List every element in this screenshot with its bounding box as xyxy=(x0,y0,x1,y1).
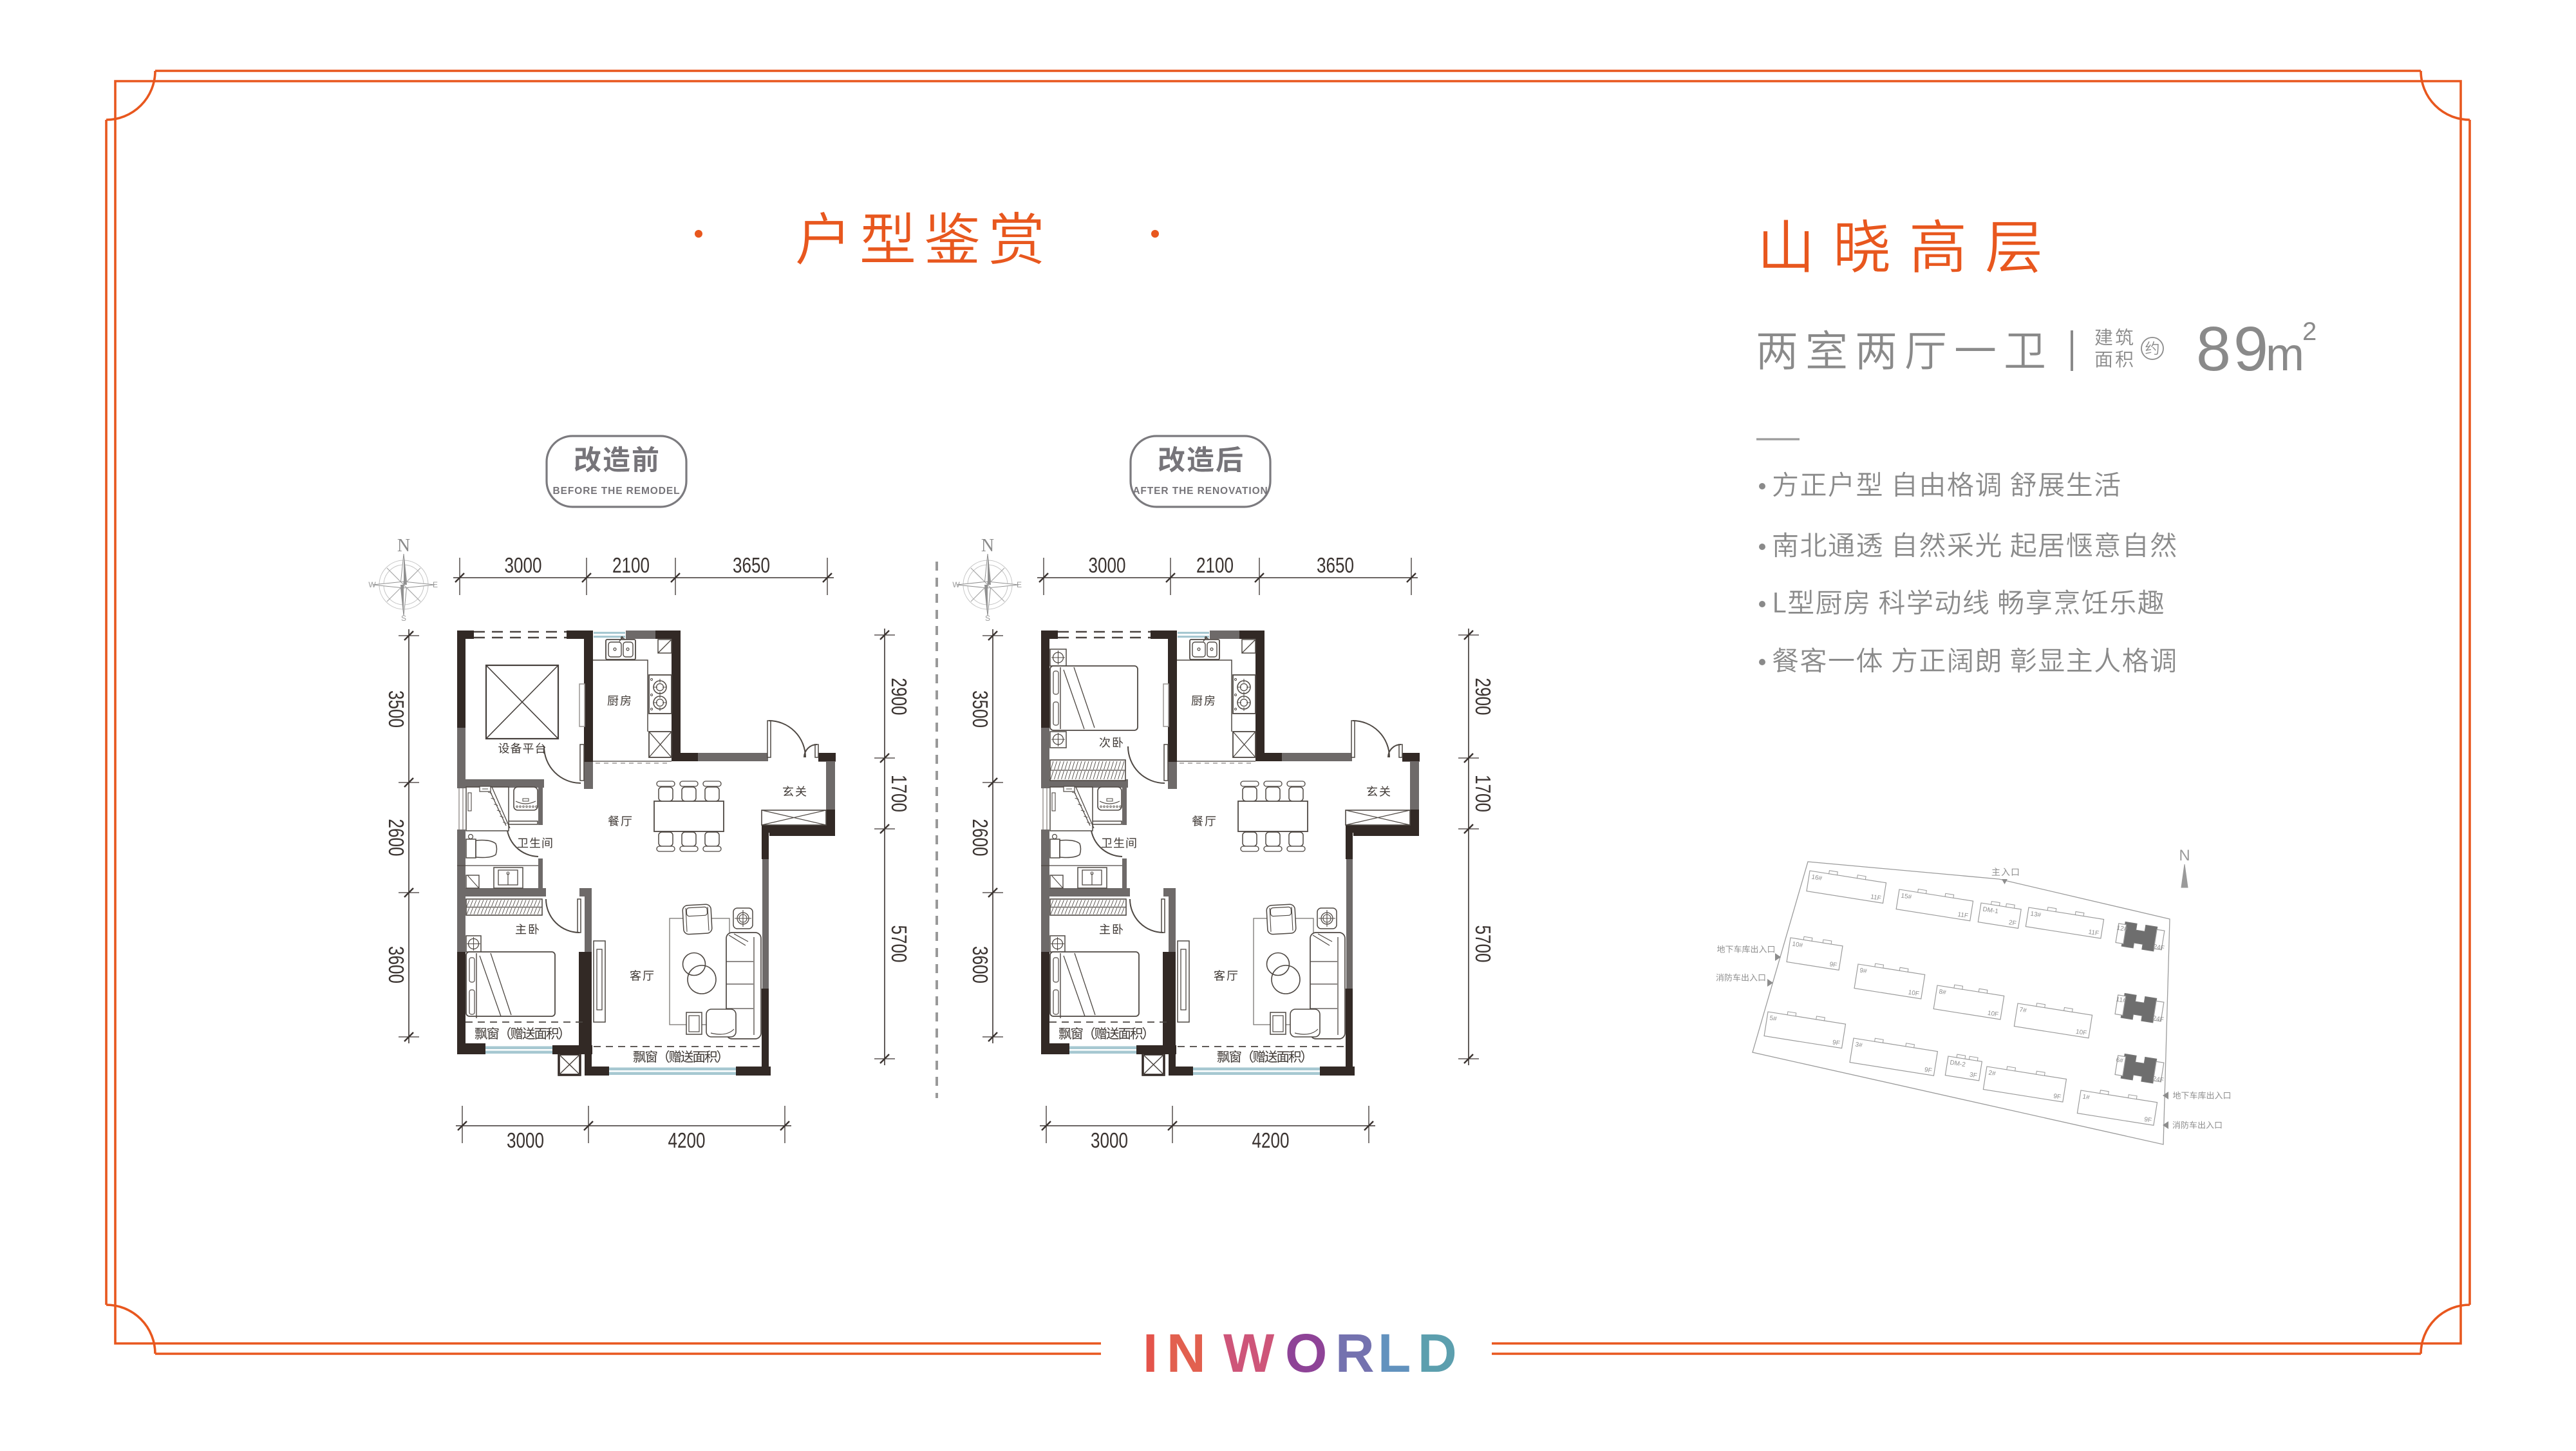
svg-text:1700: 1700 xyxy=(1471,775,1495,812)
svg-text:E: E xyxy=(1017,580,1022,589)
svg-text:2#: 2# xyxy=(1988,1070,1997,1078)
svg-text:2600: 2600 xyxy=(384,819,408,857)
svg-text:9F: 9F xyxy=(1924,1067,1932,1075)
svg-text:W: W xyxy=(1223,1323,1275,1383)
svg-text:1700: 1700 xyxy=(887,775,911,812)
svg-text:2F: 2F xyxy=(2008,919,2017,927)
svg-text:8#: 8# xyxy=(1939,989,1947,997)
svg-text:2900: 2900 xyxy=(1471,678,1495,716)
svg-text:I: I xyxy=(1143,1323,1158,1383)
svg-text:R: R xyxy=(1335,1323,1375,1383)
svg-text:N: N xyxy=(397,536,410,556)
svg-text:3500: 3500 xyxy=(968,690,992,728)
svg-text:3#: 3# xyxy=(1855,1041,1863,1050)
svg-text:m: m xyxy=(2266,329,2304,381)
svg-text:24F: 24F xyxy=(2152,1015,2165,1024)
svg-text:E: E xyxy=(433,580,438,589)
svg-text:3600: 3600 xyxy=(968,946,992,983)
svg-text:N: N xyxy=(1167,1323,1206,1383)
svg-text:3500: 3500 xyxy=(384,690,408,728)
svg-text:4200: 4200 xyxy=(1252,1128,1290,1152)
svg-text:AFTER THE RENOVATION: AFTER THE RENOVATION xyxy=(1133,486,1268,497)
svg-text:9#: 9# xyxy=(1859,967,1868,976)
svg-text:N: N xyxy=(2179,847,2190,864)
svg-text:2100: 2100 xyxy=(1196,553,1234,577)
svg-text:O: O xyxy=(1285,1323,1327,1383)
svg-text:3000: 3000 xyxy=(505,553,542,577)
svg-text:3000: 3000 xyxy=(1089,553,1126,577)
svg-text:5700: 5700 xyxy=(1471,925,1495,963)
svg-text:4200: 4200 xyxy=(668,1128,706,1152)
svg-text:3600: 3600 xyxy=(384,946,408,983)
svg-text:3650: 3650 xyxy=(1317,553,1354,577)
svg-text:2: 2 xyxy=(2302,318,2317,346)
svg-text:9F: 9F xyxy=(2053,1093,2062,1101)
svg-text:6#: 6# xyxy=(2116,1057,2124,1065)
svg-text:3650: 3650 xyxy=(733,553,770,577)
svg-text:N: N xyxy=(981,536,994,556)
svg-text:89: 89 xyxy=(2196,314,2271,384)
svg-text:3000: 3000 xyxy=(1091,1128,1128,1152)
svg-text:S: S xyxy=(401,614,406,623)
svg-text:3000: 3000 xyxy=(507,1128,544,1152)
svg-text:2100: 2100 xyxy=(612,553,650,577)
svg-text:2600: 2600 xyxy=(968,819,992,857)
svg-text:D: D xyxy=(1418,1323,1457,1383)
svg-text:7#: 7# xyxy=(2019,1007,2027,1015)
svg-text:W: W xyxy=(368,580,376,589)
svg-text:5#: 5# xyxy=(1769,1015,1778,1023)
svg-text:W: W xyxy=(952,580,960,589)
svg-text:L: L xyxy=(1378,1323,1411,1383)
svg-text:9F: 9F xyxy=(1829,961,1838,969)
svg-text:9F: 9F xyxy=(1832,1039,1840,1047)
svg-text:S: S xyxy=(985,614,990,623)
svg-text:9F: 9F xyxy=(2144,1116,2152,1124)
svg-text:3F: 3F xyxy=(1969,1072,1977,1080)
svg-text:5700: 5700 xyxy=(887,925,911,963)
svg-text:24F: 24F xyxy=(2153,944,2165,953)
svg-text:1#: 1# xyxy=(2082,1094,2091,1102)
svg-text:24F: 24F xyxy=(2152,1076,2165,1085)
svg-text:BEFORE THE REMODEL: BEFORE THE REMODEL xyxy=(553,486,681,497)
svg-text:2900: 2900 xyxy=(887,678,911,716)
